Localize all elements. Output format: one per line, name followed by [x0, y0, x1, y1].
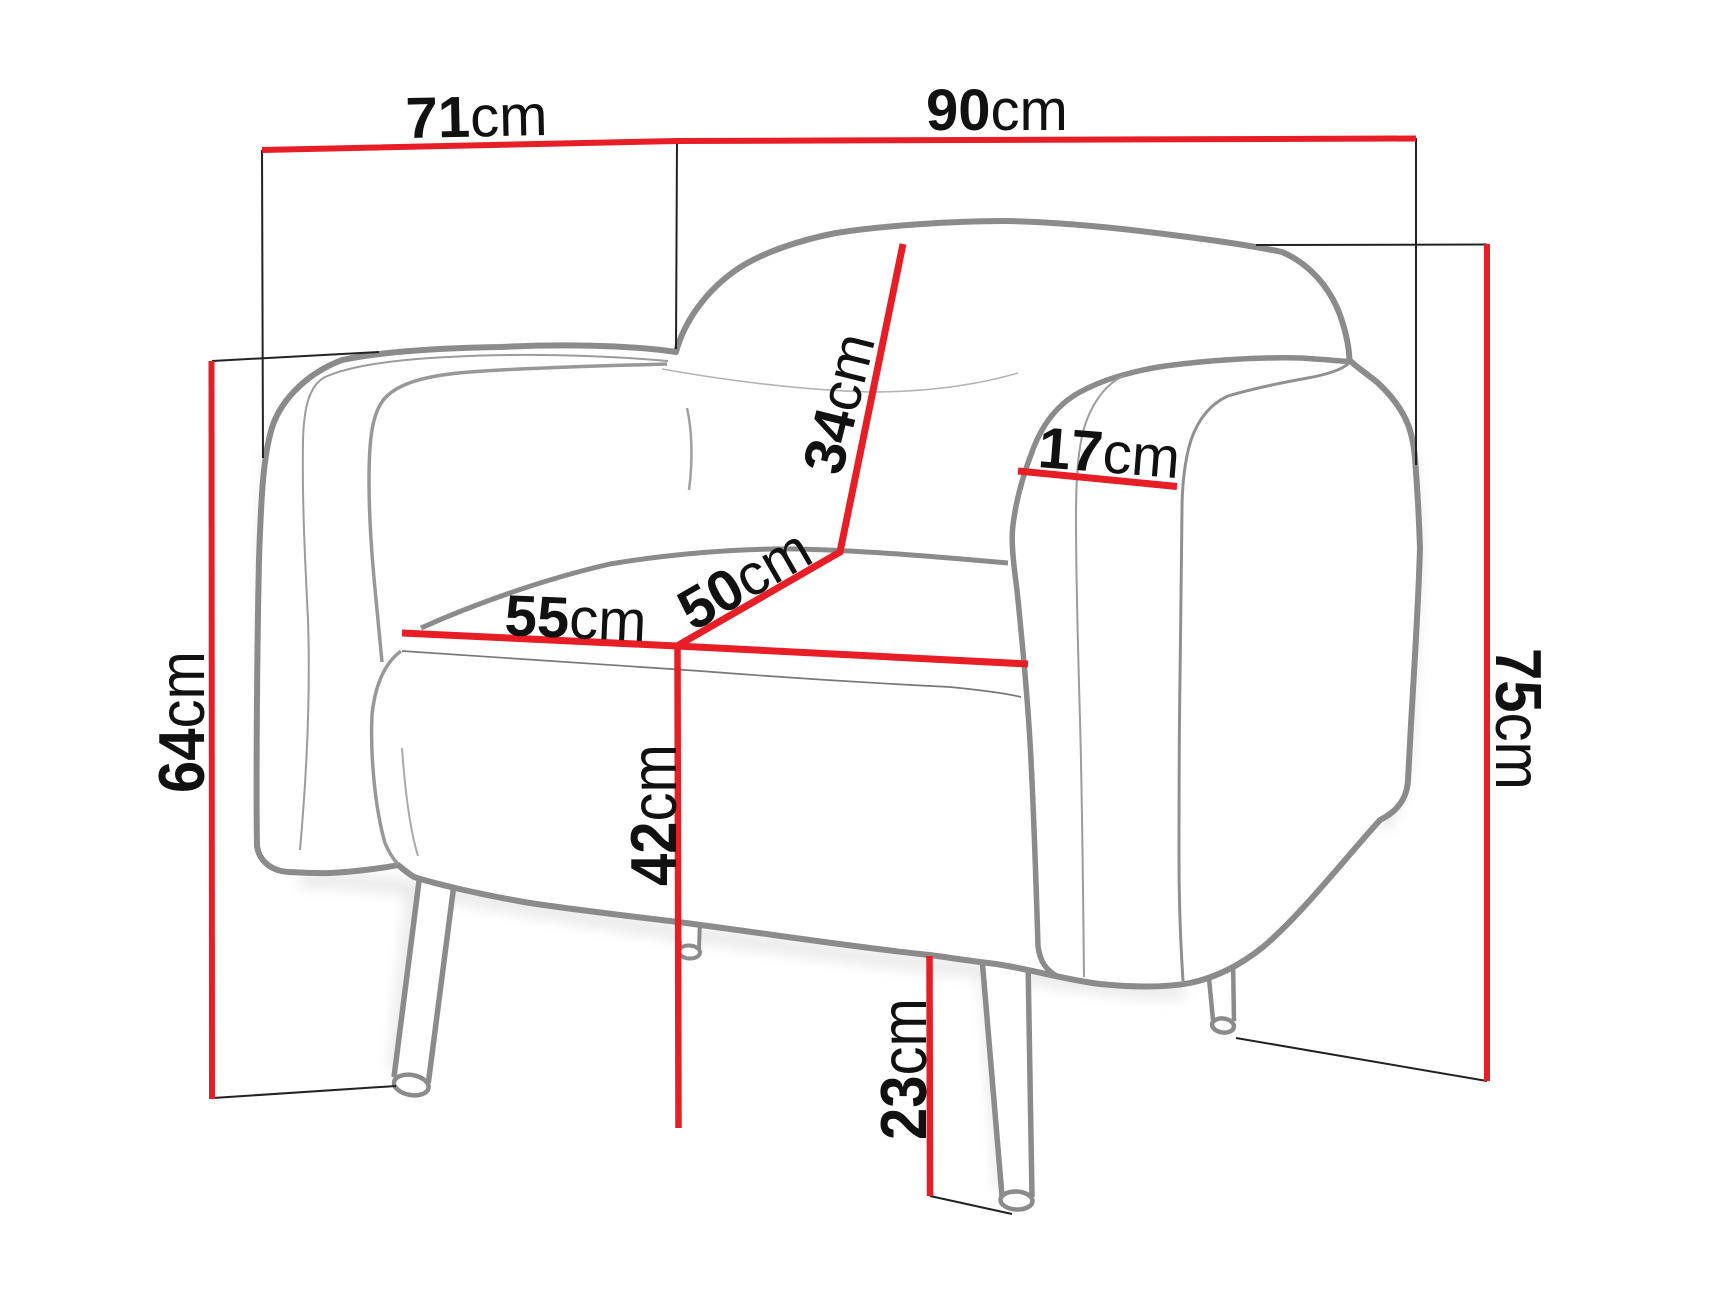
- svg-text:64cm: 64cm: [146, 651, 219, 793]
- svg-text:75cm: 75cm: [1481, 648, 1554, 790]
- svg-text:90cm: 90cm: [926, 78, 1068, 143]
- svg-text:42cm: 42cm: [618, 744, 691, 886]
- svg-text:23cm: 23cm: [868, 998, 941, 1140]
- svg-text:55cm: 55cm: [503, 583, 648, 654]
- svg-text:71cm: 71cm: [405, 83, 548, 151]
- svg-text:17cm: 17cm: [1036, 415, 1183, 491]
